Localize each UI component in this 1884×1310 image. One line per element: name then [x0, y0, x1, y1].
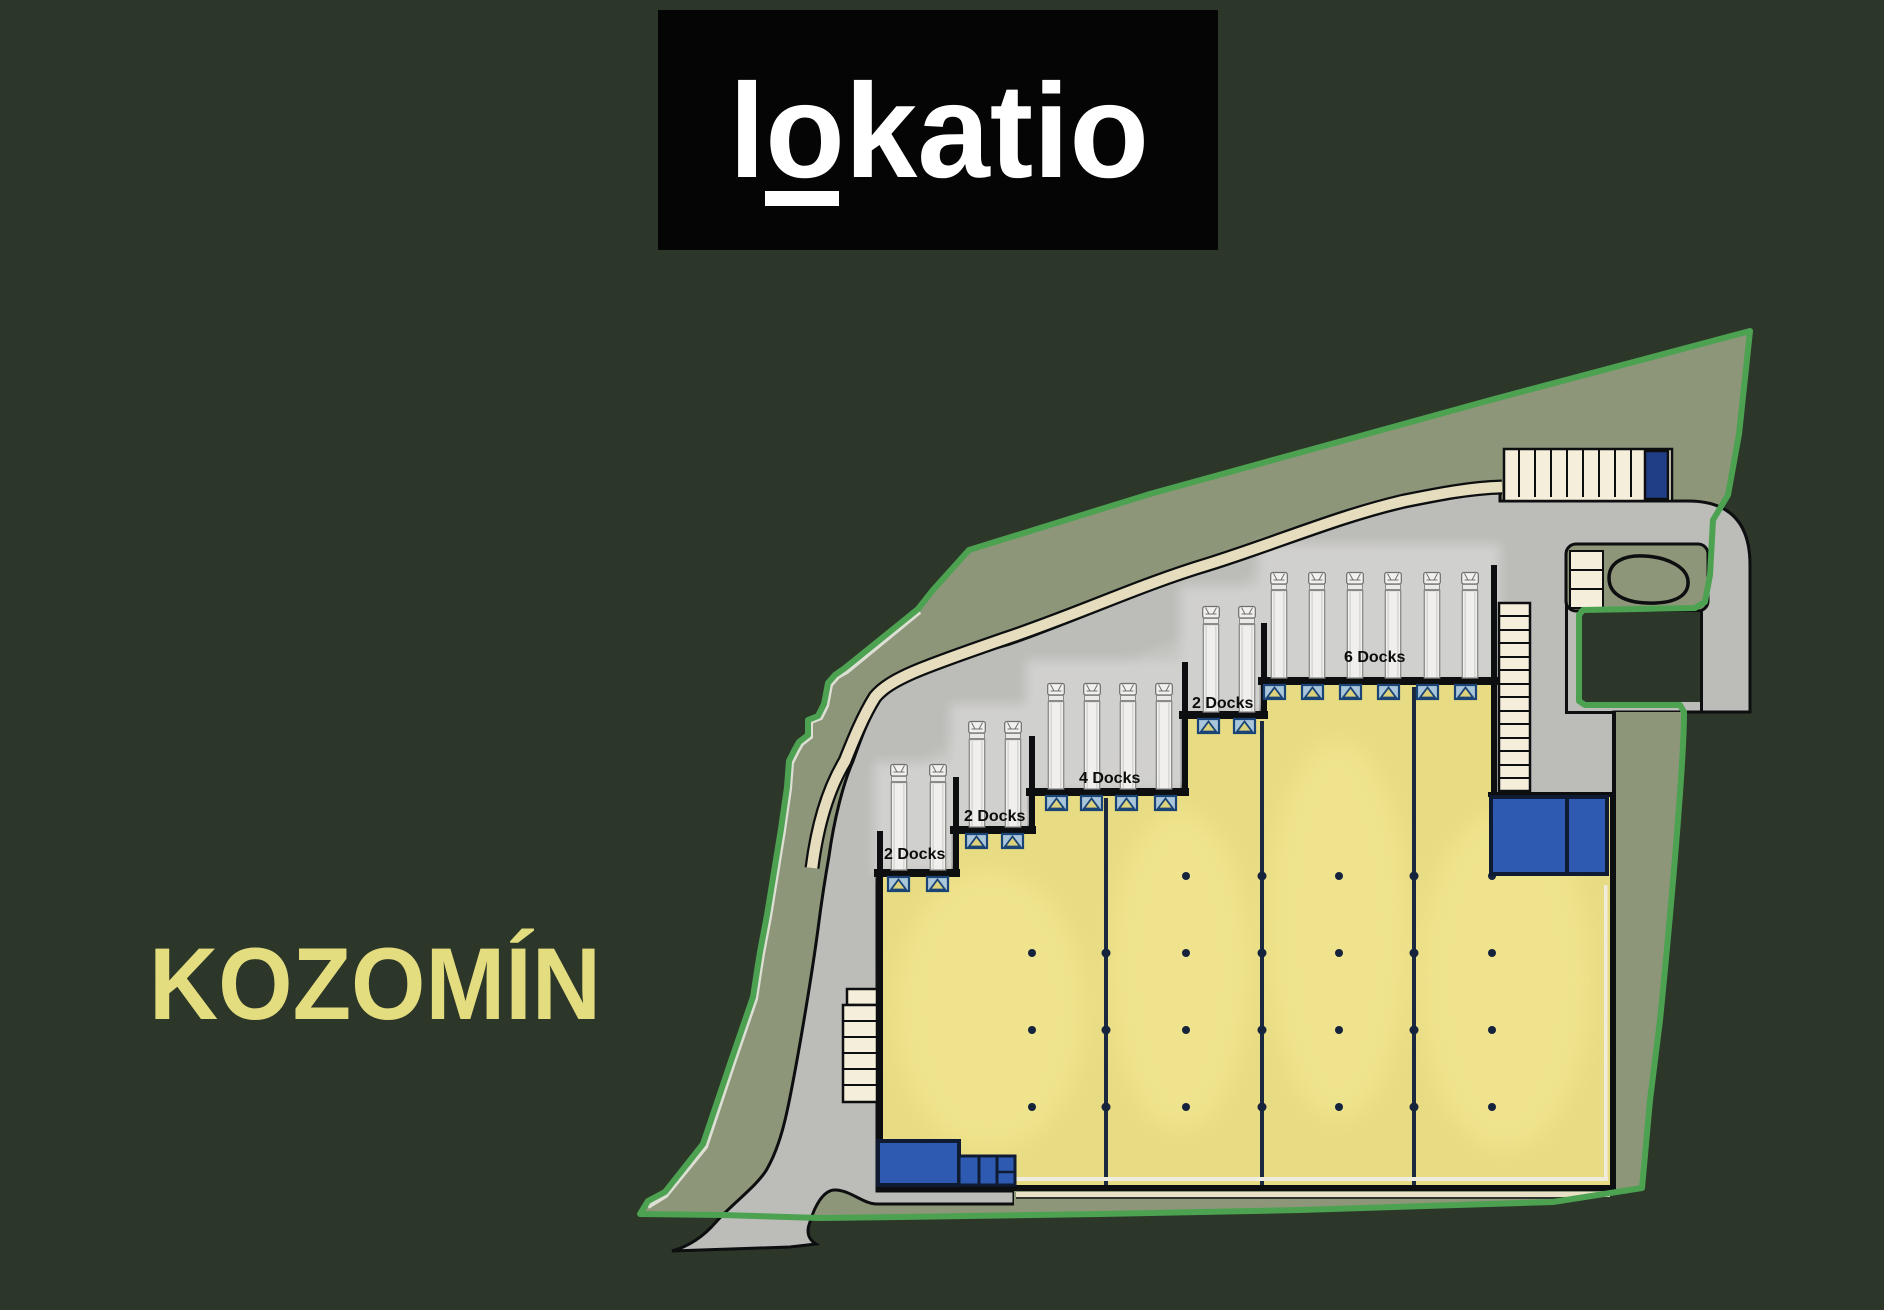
svg-text:KOZOMÍN: KOZOMÍN: [149, 927, 601, 1041]
svg-text:2 Docks: 2 Docks: [884, 846, 945, 863]
svg-text:2 Docks: 2 Docks: [964, 808, 1025, 825]
svg-text:2 Docks: 2 Docks: [1192, 695, 1253, 712]
svg-text:4 Docks: 4 Docks: [1079, 770, 1140, 787]
svg-text:lokatio: lokatio: [729, 57, 1149, 206]
svg-text:6 Docks: 6 Docks: [1344, 649, 1405, 666]
